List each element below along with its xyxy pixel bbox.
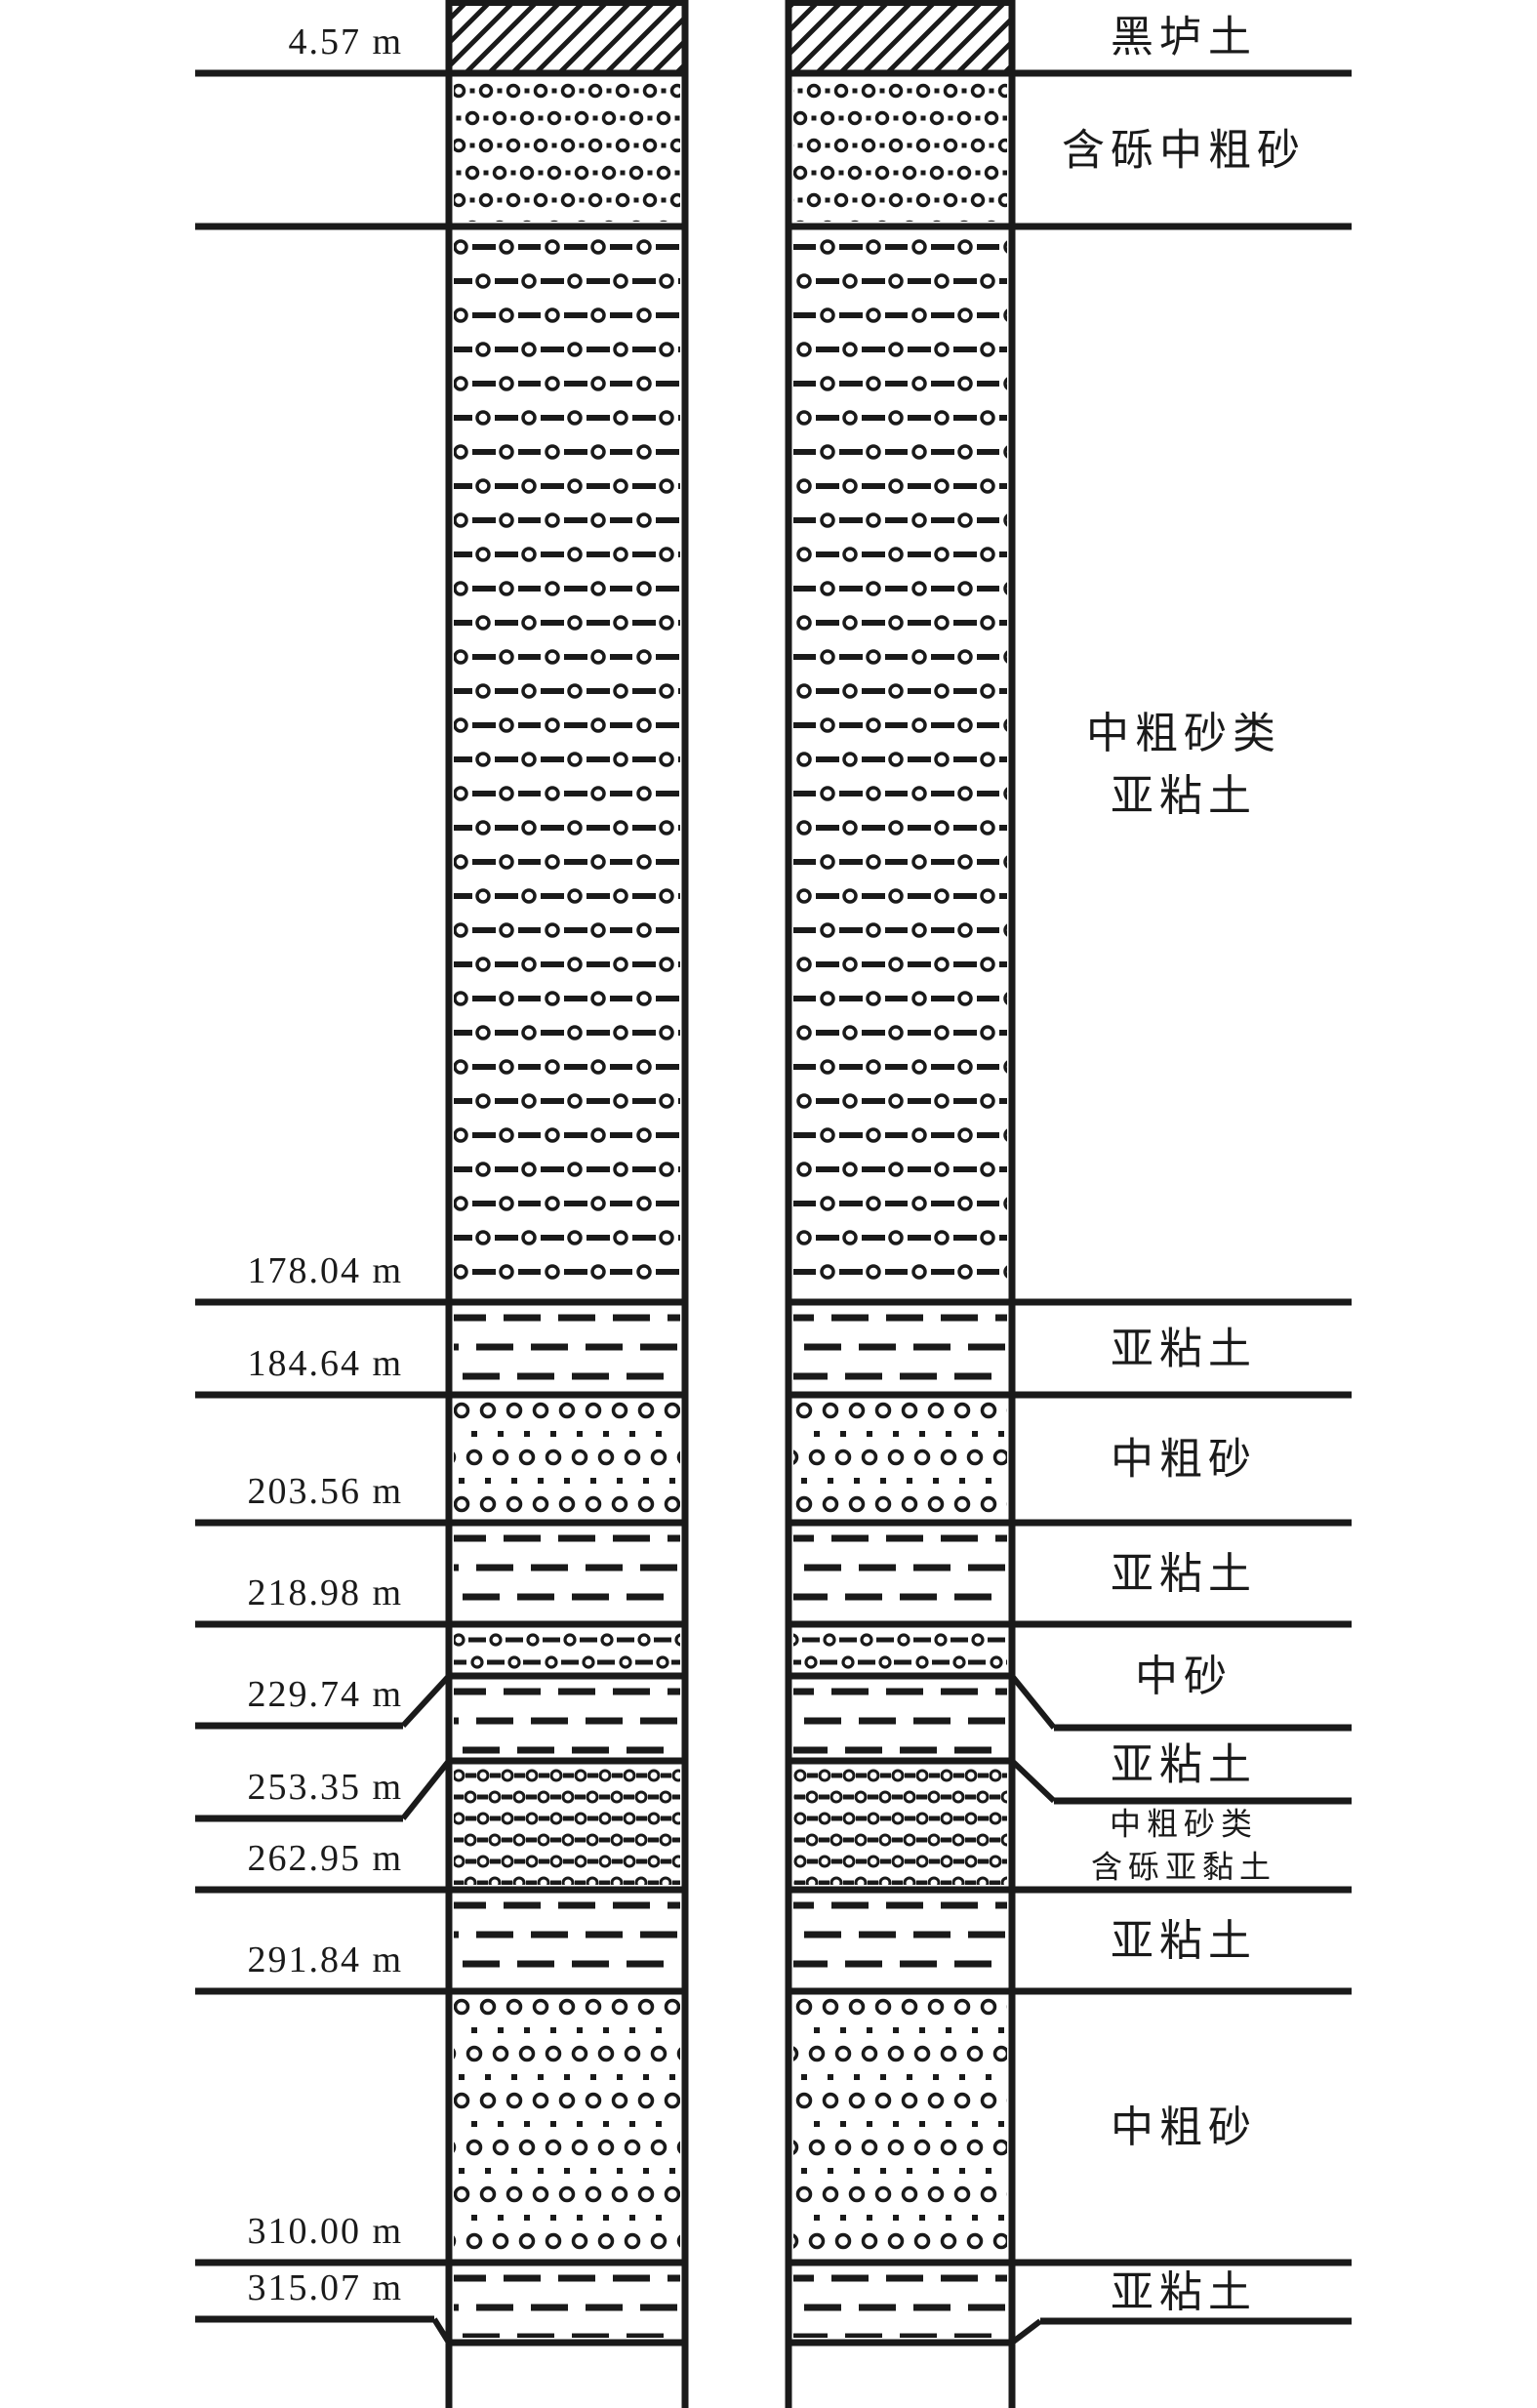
lithology-label: 亚粘土 [1111, 2268, 1257, 2316]
layer-band-gravelclay [793, 1766, 1007, 1885]
layer-band-coarsesand [793, 1400, 1007, 1518]
layer-band-clay [454, 1681, 680, 1756]
layer-band-clay [454, 2267, 680, 2338]
depth-label: 310.00 m [247, 2211, 403, 2252]
depth-label: 229.74 m [247, 1674, 403, 1715]
lithology-label: 亚粘土 [1111, 772, 1257, 820]
depth-label: 218.98 m [247, 1572, 403, 1613]
layer-band-clay [793, 2267, 1007, 2338]
step-leader-left [403, 1676, 449, 1726]
layer-band-clay [454, 1895, 680, 1986]
layer-band-clay [793, 1895, 1007, 1986]
layer-band-mediumsand [454, 1629, 680, 1671]
lithology-label: 中粗砂类 [1110, 1807, 1258, 1842]
layer-band-coarsesand [454, 1400, 680, 1518]
lithology-label: 亚粘土 [1111, 1917, 1257, 1965]
layer-band-hatch [451, 0, 683, 73]
lithology-label: 中砂 [1135, 1653, 1233, 1700]
layer-band-sandclay [793, 231, 1007, 1297]
depth-label: 184.64 m [247, 1343, 403, 1384]
lithology-label: 含砾中粗砂 [1062, 127, 1306, 175]
step-leader-right [1012, 1761, 1054, 1801]
layer-band-sandclay [454, 231, 680, 1297]
depth-label: 253.35 m [247, 1767, 403, 1808]
depth-label: 315.07 m [247, 2267, 403, 2308]
lithology-label: 亚粘土 [1111, 1326, 1257, 1373]
layer-band-clay [454, 1528, 680, 1619]
lithology-label: 含砾亚黏土 [1091, 1850, 1276, 1885]
layer-band-gravelsand [454, 78, 680, 222]
lithology-label: 中粗砂类 [1086, 710, 1281, 757]
layer-band-hatch [790, 0, 1010, 73]
lithology-label: 中粗砂 [1111, 2103, 1257, 2151]
lithology-label: 黑垆土 [1111, 14, 1257, 61]
layer-band-clay [793, 1307, 1007, 1390]
layer-band-clay [454, 1307, 680, 1390]
layer-band-clay [793, 1528, 1007, 1619]
step-leader-right [1012, 1676, 1054, 1728]
lithology-label: 亚粘土 [1111, 1550, 1257, 1598]
lithology-label: 亚粘土 [1111, 1741, 1257, 1789]
right-borehole-column [789, 0, 1012, 2408]
left-borehole-column [449, 0, 685, 2408]
depth-label: 291.84 m [247, 1939, 403, 1980]
layer-band-coarsesand [793, 1996, 1007, 2258]
lithology-labels: 黑垆土含砾中粗砂中粗砂类亚粘土亚粘土中粗砂亚粘土中砂亚粘土中粗砂类含砾亚黏土亚粘… [1062, 14, 1306, 2317]
layer-band-gravelsand [793, 78, 1007, 222]
step-leader-left [403, 1761, 449, 1818]
lithology-label: 中粗砂 [1111, 1436, 1257, 1484]
layer-band-gravelclay [454, 1766, 680, 1885]
layer-boundaries: 4.57 m178.04 m184.64 m203.56 m218.98 m22… [195, 21, 1352, 2343]
layer-band-coarsesand [454, 1996, 680, 2258]
stratigraphic-column-figure: 4.57 m178.04 m184.64 m203.56 m218.98 m22… [0, 0, 1537, 2408]
layer-band-mediumsand [793, 1629, 1007, 1671]
depth-label: 262.95 m [247, 1838, 403, 1879]
depth-label: 203.56 m [247, 1471, 403, 1512]
depth-label: 4.57 m [288, 21, 403, 62]
layer-band-clay [793, 1681, 1007, 1756]
step-leader-right [1012, 2321, 1040, 2343]
depth-label: 178.04 m [247, 1250, 403, 1291]
borehole-log-svg: 4.57 m178.04 m184.64 m203.56 m218.98 m22… [0, 0, 1537, 2408]
